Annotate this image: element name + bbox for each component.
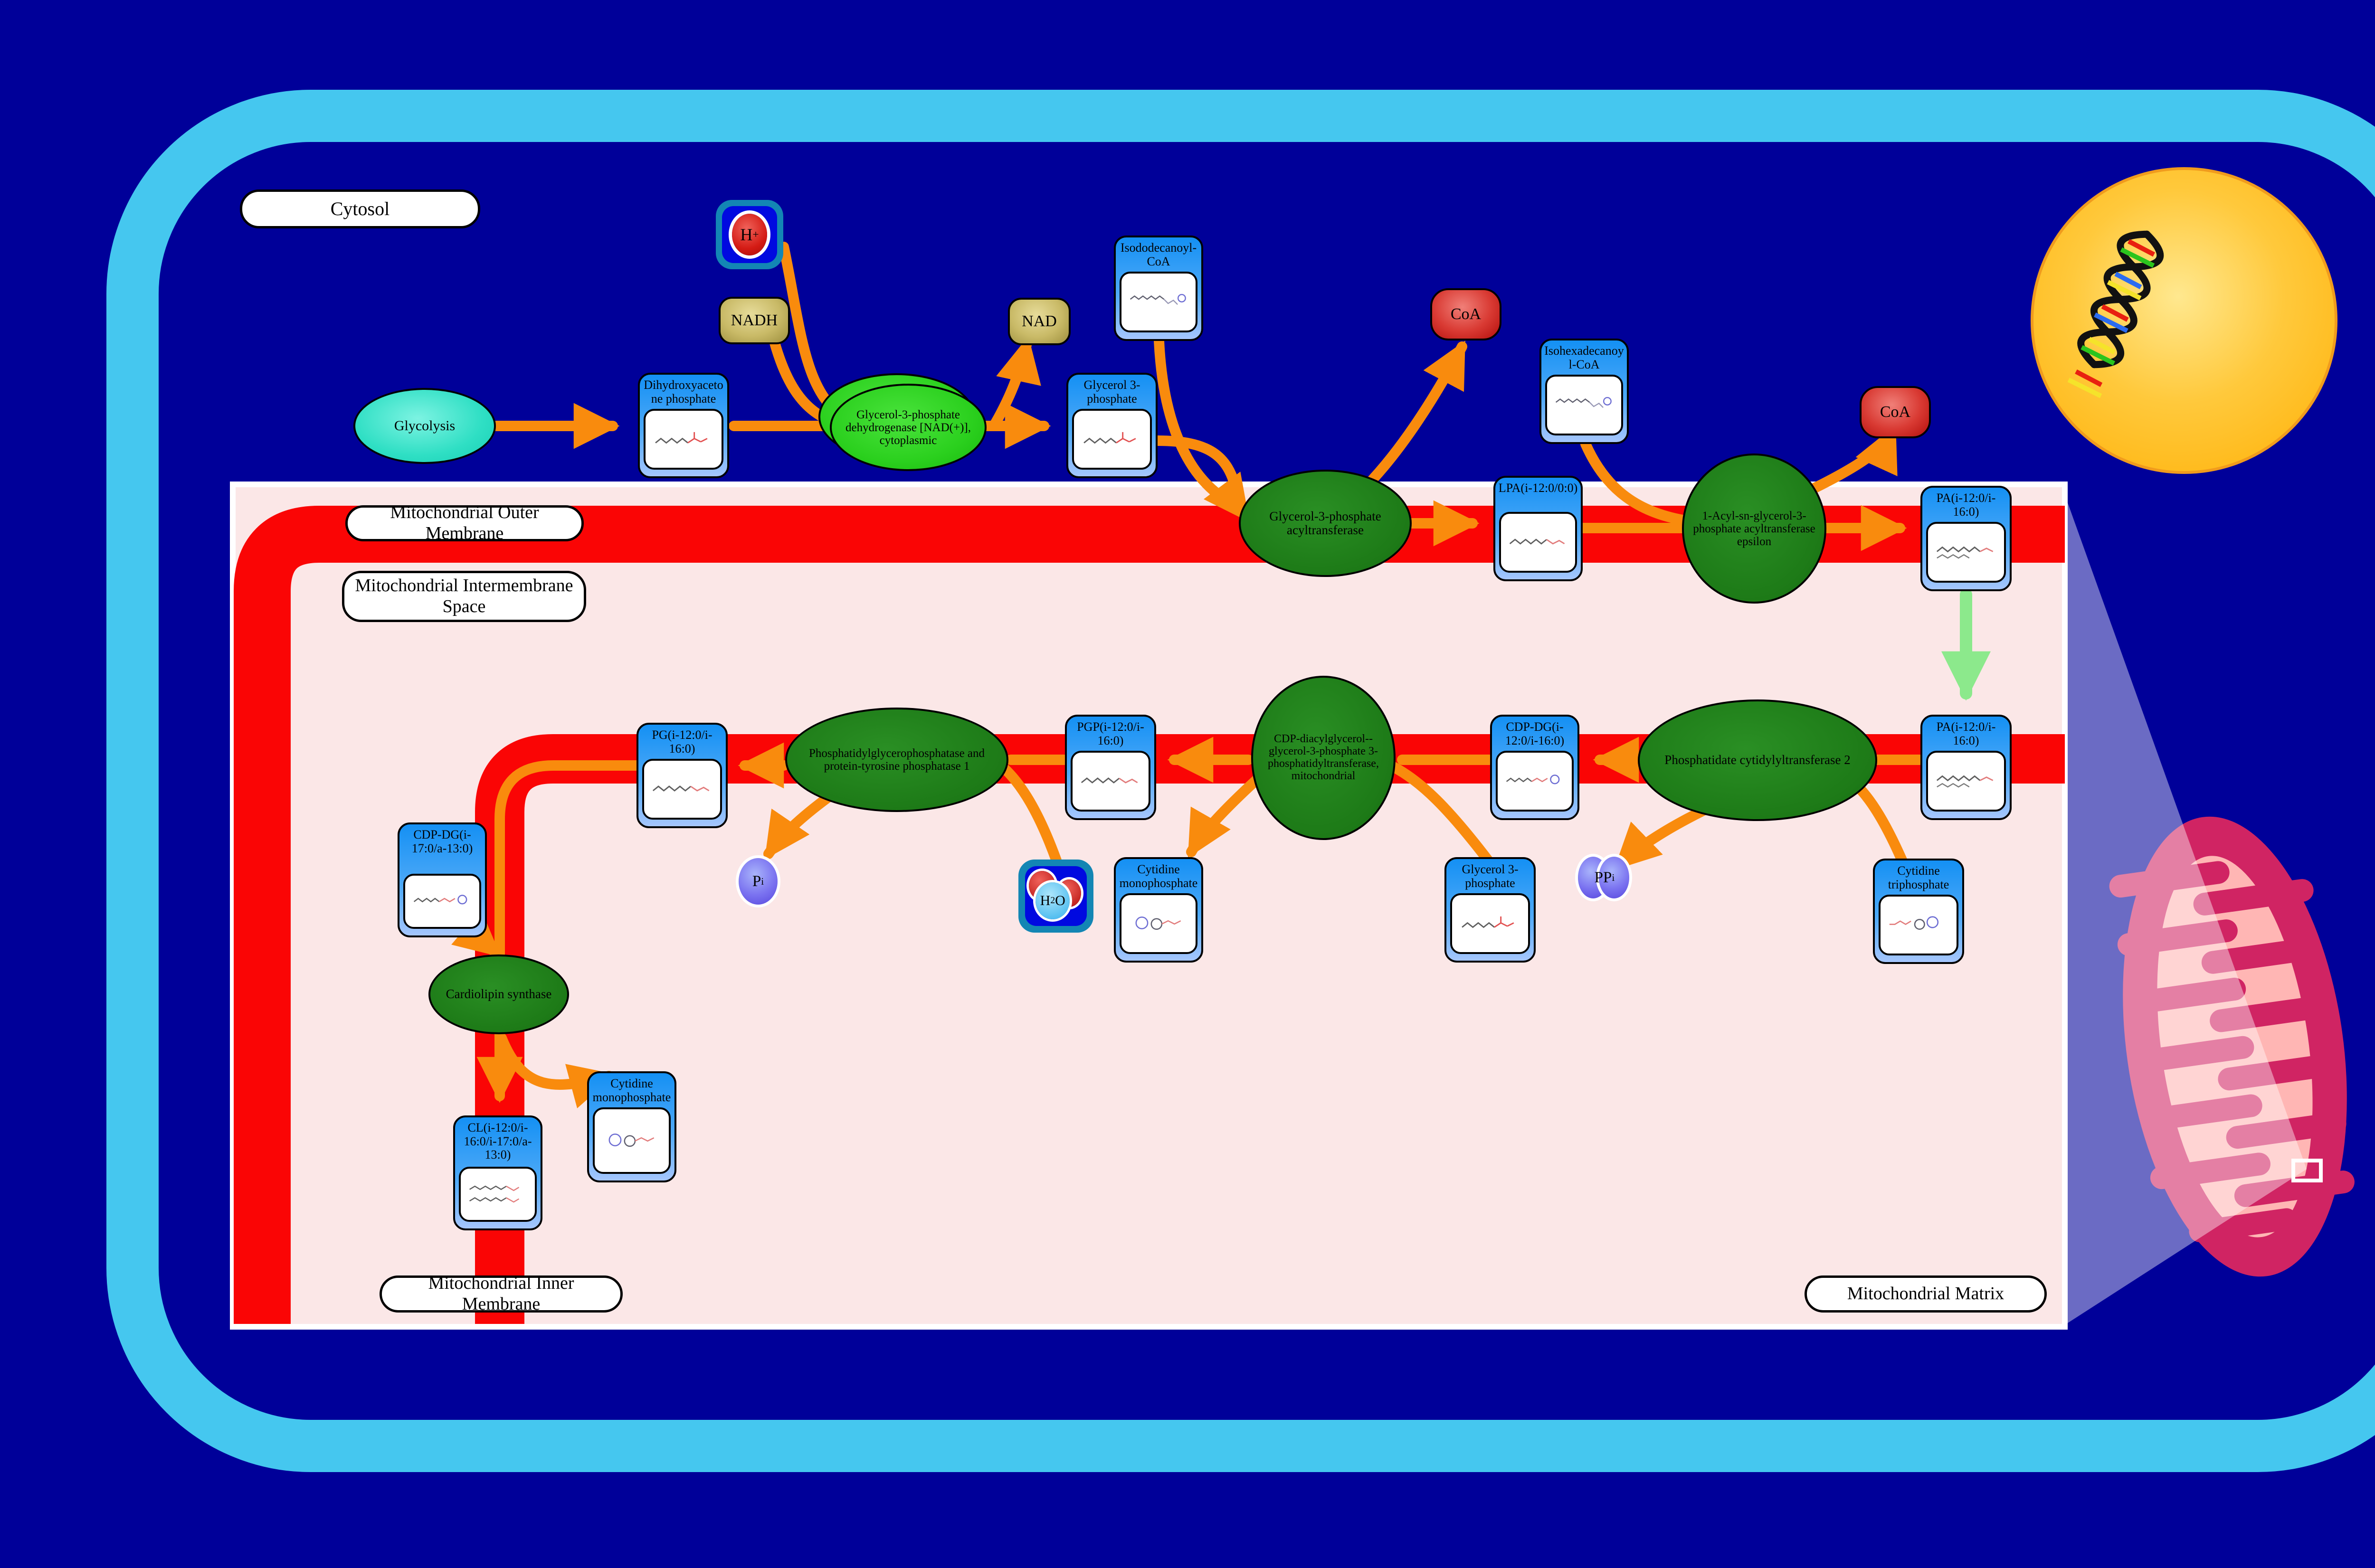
- structure-image: [459, 1167, 537, 1222]
- label-cytosol: Cytosol: [240, 189, 480, 228]
- enzyme-g3p-acyltransferase[interactable]: Glycerol-3-phosphate acyltransferase: [1239, 470, 1412, 577]
- metabolite-label: Cytidine monophosphate: [1116, 859, 1201, 891]
- metabolite-label: CL(i-12:0/i-16:0/i-17:0/a-13:0): [455, 1117, 541, 1163]
- metabolite-label: CDP-DG(i-12:0/i-16:0): [1492, 717, 1577, 748]
- pathway-node-glycolysis[interactable]: Glycolysis: [353, 388, 496, 464]
- metabolite-pa-cytosolic[interactable]: PA(i-12:0/i-16:0): [1920, 486, 2012, 591]
- metabolite-label: Dihydroxyacetone phosphate: [640, 375, 727, 406]
- metabolite-cardiolipin[interactable]: CL(i-12:0/i-16:0/i-17:0/a-13:0): [453, 1115, 542, 1230]
- metabolite-label: PA(i-12:0/i-16:0): [1922, 488, 2010, 520]
- metabolite-label: CDP-DG(i-17:0/a-13:0): [399, 824, 485, 856]
- metabolite-label: LPA(i-12:0/0:0): [1495, 478, 1581, 505]
- structure-image: [593, 1107, 671, 1174]
- cofactor-coa-1[interactable]: CoA: [1430, 288, 1501, 340]
- cofactor-nad[interactable]: NAD: [1008, 298, 1071, 345]
- metabolite-cdp-dg-mid[interactable]: CDP-DG(i-12:0/i-16:0): [1490, 715, 1579, 820]
- water-icon[interactable]: H2O: [1018, 860, 1093, 933]
- cofactor-ppi[interactable]: PPi: [1578, 855, 1631, 900]
- structure-image: [642, 759, 722, 820]
- metabolite-isohexadecanoyl-coa[interactable]: Isohexadecanoyl-CoA: [1539, 339, 1629, 444]
- enzyme-cardiolipin-synthase[interactable]: Cardiolipin synthase: [428, 954, 569, 1034]
- cofactor-nadh[interactable]: NADH: [719, 297, 790, 344]
- metabolite-label: PGP(i-12:0/i-16:0): [1067, 717, 1154, 748]
- metabolite-label: Cytidine triphosphate: [1875, 860, 1962, 892]
- structure-image: [1450, 893, 1530, 954]
- structure-image: [1120, 272, 1197, 332]
- label-intermembrane-space: Mitochondrial Intermembrane Space: [342, 571, 586, 622]
- structure-image: [1496, 751, 1574, 812]
- metabolite-label: PG(i-12:0/i-16:0): [638, 725, 726, 756]
- metabolite-label: Cytidine monophosphate: [589, 1073, 674, 1105]
- metabolite-label: Isododecanoyl-CoA: [1116, 237, 1201, 269]
- metabolite-dhap[interactable]: Dihydroxyacetone phosphate: [638, 373, 729, 478]
- metabolite-g3p-mid[interactable]: Glycerol 3-phosphate: [1444, 857, 1536, 963]
- structure-image: [1071, 751, 1150, 812]
- metabolite-label: Isohexadecanoyl-CoA: [1541, 340, 1627, 372]
- label-matrix: Mitochondrial Matrix: [1805, 1275, 2047, 1313]
- structure-image: [1499, 512, 1577, 573]
- metabolite-label: PA(i-12:0/i-16:0): [1922, 717, 2010, 748]
- enzyme-cdp-dag-g3p-phosphatidyltransferase[interactable]: CDP-diacylglycerol--glycerol-3-phosphate…: [1251, 676, 1396, 840]
- structure-image: [1545, 375, 1623, 435]
- metabolite-label: Glycerol 3-phosphate: [1446, 859, 1534, 891]
- enzyme-agpat-epsilon[interactable]: 1-Acyl-sn-glycerol-3-phosphate acyltrans…: [1682, 453, 1826, 604]
- label-outer-membrane: Mitochondrial Outer Membrane: [345, 505, 584, 541]
- metabolite-lpa[interactable]: LPA(i-12:0/0:0): [1493, 476, 1583, 581]
- enzyme-pgp-phosphatase[interactable]: Phosphatidylglycerophosphatase and prote…: [785, 708, 1008, 812]
- structure-image: [1926, 751, 2006, 812]
- metabolite-g3p-top[interactable]: Glycerol 3-phosphate: [1066, 373, 1158, 478]
- metabolite-cdp-dg-17-13[interactable]: CDP-DG(i-17:0/a-13:0): [398, 822, 487, 937]
- structure-image: [644, 409, 723, 470]
- metabolite-cmp-mid[interactable]: Cytidine monophosphate: [1114, 857, 1203, 963]
- enzyme-phosphatidate-cytidylyltransferase-2[interactable]: Phosphatidate cytidylyltransferase 2: [1638, 699, 1877, 821]
- enzyme-g3p-dehydrogenase[interactable]: Glycerol-3-phosphate dehydrogenase [NAD(…: [830, 384, 987, 471]
- structure-image: [1926, 522, 2006, 583]
- structure-image: [403, 874, 481, 929]
- structure-image: [1120, 893, 1197, 954]
- structure-image: [1072, 409, 1152, 470]
- metabolite-pa-membrane[interactable]: PA(i-12:0/i-16:0): [1920, 715, 2012, 820]
- cofactor-pi[interactable]: Pi: [739, 858, 778, 905]
- structure-image: [1879, 895, 1958, 955]
- ppi-label: PPi: [1578, 855, 1631, 900]
- metabolite-pg[interactable]: PG(i-12:0/i-16:0): [636, 723, 728, 828]
- water-label: H2O: [1035, 882, 1070, 919]
- cofactor-coa-2[interactable]: CoA: [1860, 386, 1931, 438]
- metabolite-ctp[interactable]: Cytidine triphosphate: [1873, 859, 1964, 964]
- label-inner-membrane: Mitochondrial Inner Membrane: [380, 1275, 623, 1313]
- proton-icon[interactable]: H+: [716, 200, 783, 269]
- metabolite-isododecanoyl-coa[interactable]: Isododecanoyl-CoA: [1114, 236, 1203, 341]
- metabolite-pgp[interactable]: PGP(i-12:0/i-16:0): [1065, 715, 1156, 820]
- pathway-diagram: Cytosol Mitochondrial Outer Membrane Mit…: [0, 0, 2375, 1568]
- metabolite-label: Glycerol 3-phosphate: [1068, 375, 1156, 406]
- metabolite-cmp-bottom[interactable]: Cytidine monophosphate: [587, 1071, 676, 1182]
